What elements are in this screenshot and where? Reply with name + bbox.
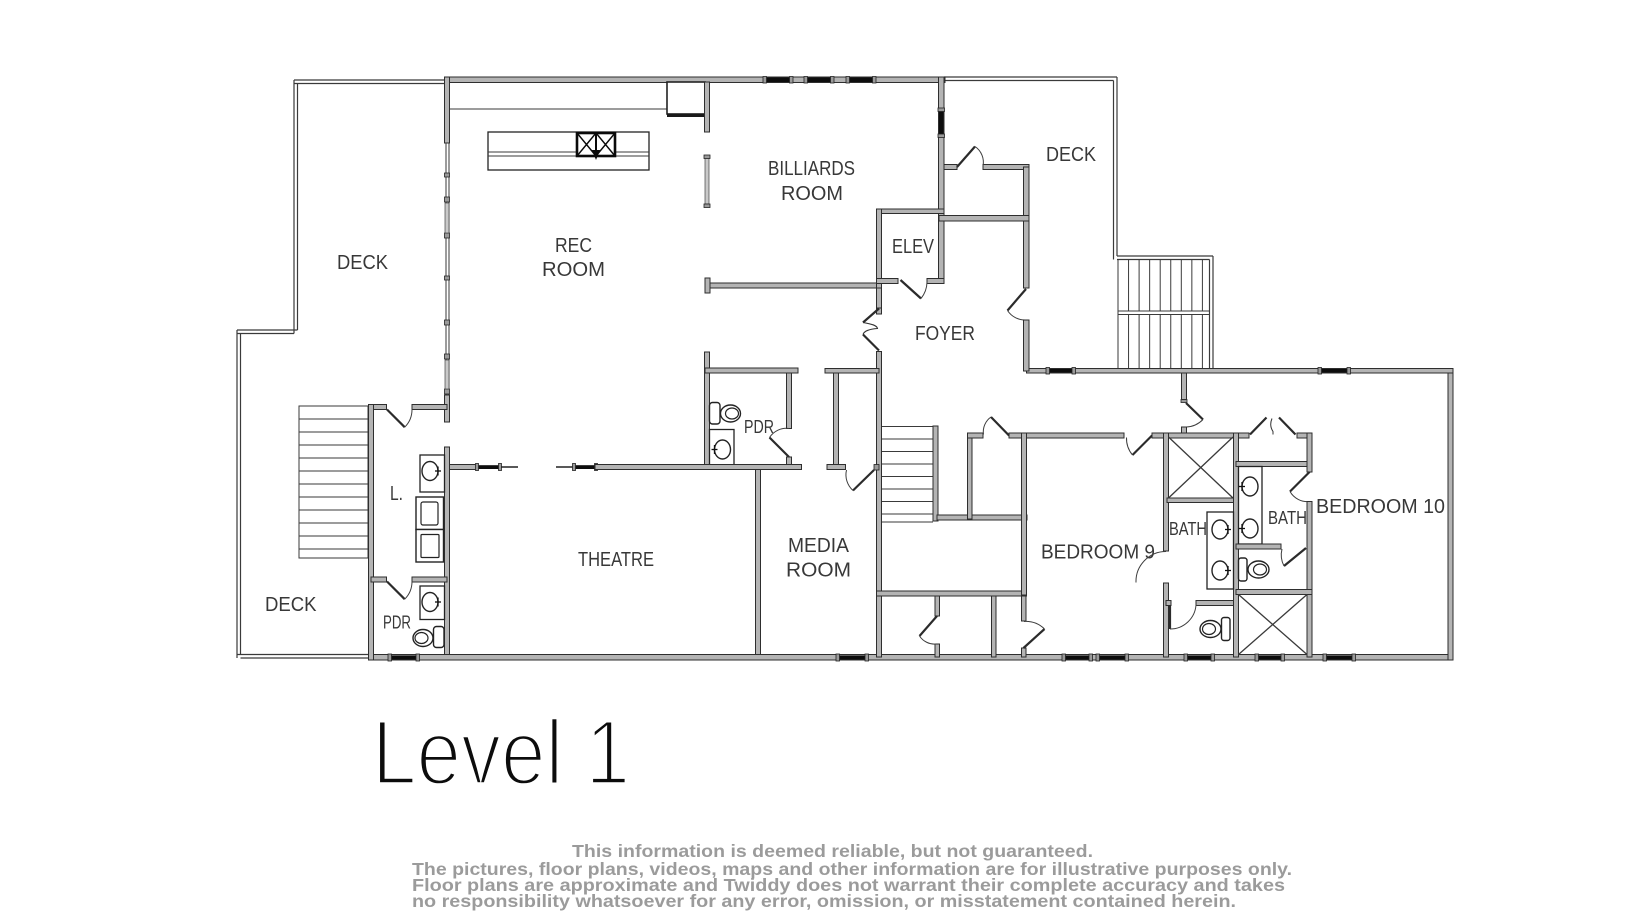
svg-text:L.: L.	[390, 482, 403, 505]
svg-text:ELEV: ELEV	[892, 235, 934, 258]
svg-text:REC: REC	[555, 234, 592, 257]
svg-text:ROOM: ROOM	[786, 559, 851, 582]
svg-text:PDR: PDR	[383, 613, 411, 633]
svg-text:BEDROOM 10: BEDROOM 10	[1316, 495, 1445, 518]
svg-text:ROOM: ROOM	[781, 182, 843, 205]
svg-text:DECK: DECK	[1046, 143, 1096, 166]
svg-text:no responsibility whatsoever f: no responsibility whatsoever for any err…	[412, 891, 1236, 911]
svg-text:PDR: PDR	[744, 417, 774, 437]
svg-text:Level 1: Level 1	[372, 702, 630, 804]
svg-text:BATH: BATH	[1169, 518, 1207, 539]
svg-text:FOYER: FOYER	[915, 322, 975, 345]
svg-text:BATH: BATH	[1268, 507, 1307, 528]
svg-text:DECK: DECK	[265, 593, 317, 616]
svg-text:DECK: DECK	[337, 251, 388, 274]
svg-text:THEATRE: THEATRE	[578, 548, 654, 571]
svg-text:ROOM: ROOM	[542, 258, 605, 281]
svg-text:BILLIARDS: BILLIARDS	[768, 157, 855, 180]
svg-text:This information is deemed rel: This information is deemed reliable, but…	[572, 841, 1093, 861]
svg-text:MEDIA: MEDIA	[788, 534, 849, 557]
svg-text:BEDROOM 9: BEDROOM 9	[1041, 541, 1155, 564]
